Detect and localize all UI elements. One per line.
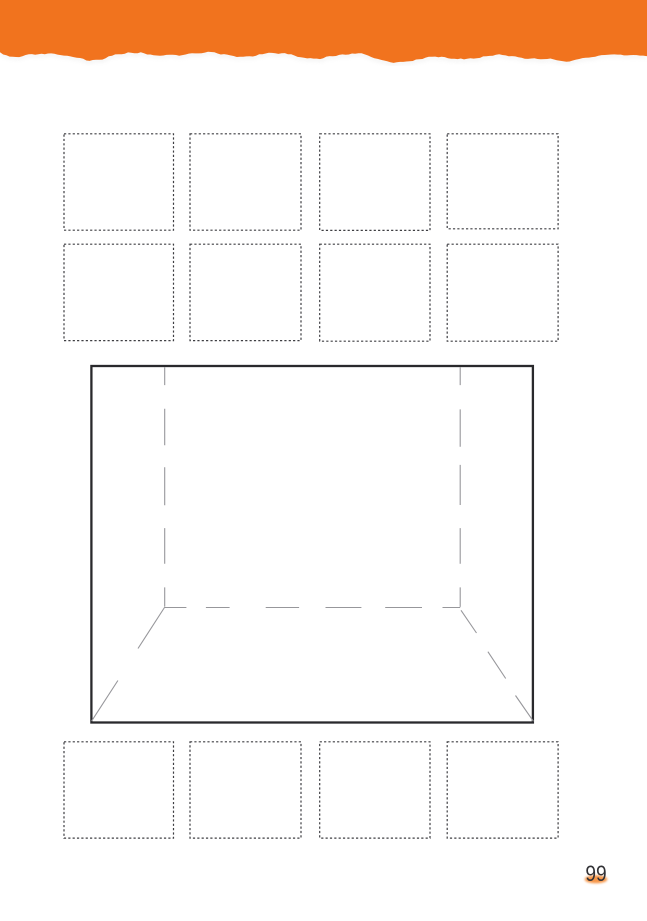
svg-text:99: 99: [585, 862, 606, 887]
